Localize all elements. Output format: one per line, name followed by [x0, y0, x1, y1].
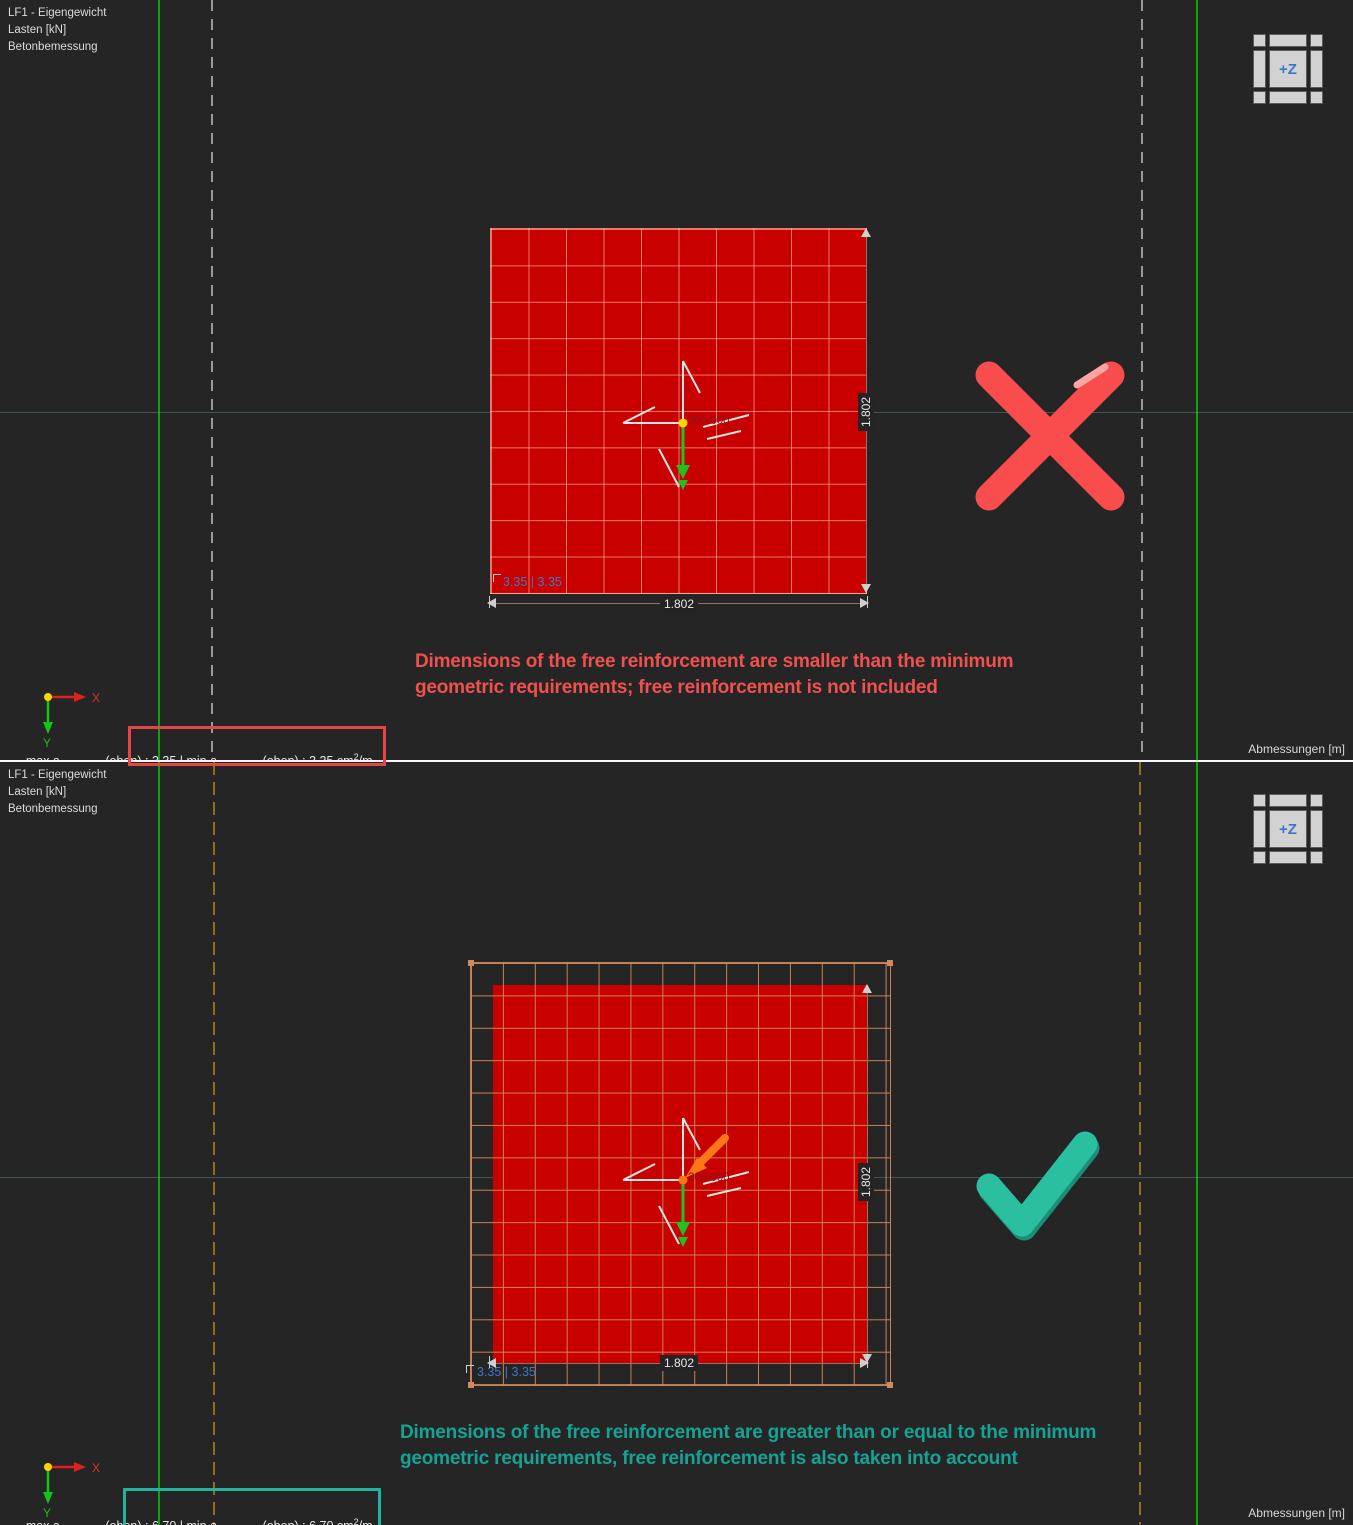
dimension-height-value: 1.802 — [858, 393, 874, 431]
view-cube-cell[interactable] — [1269, 34, 1307, 47]
view-cube-z-face[interactable]: +Z — [1269, 50, 1307, 88]
grid-line-green — [1196, 0, 1198, 760]
selection-arrow-icon — [700, 1138, 725, 1163]
dim-tick — [489, 1356, 490, 1368]
view-cube-cell[interactable] — [1253, 794, 1266, 807]
dimensions-unit-label: Abmessungen [m] — [1248, 1506, 1345, 1520]
view-cube-cell[interactable] — [1269, 794, 1307, 807]
view-cube-cell[interactable] — [1253, 34, 1266, 47]
dim-arrow-up-icon — [862, 984, 872, 993]
design-label: Betonbemessung — [8, 801, 106, 818]
annotation-accepted: Dimensions of the free reinforcement are… — [400, 1420, 1096, 1472]
view-info-block: LF1 - Eigengewicht Lasten [kN] Betonbeme… — [8, 767, 106, 818]
grid-line-dashed-yellow — [1139, 762, 1141, 1525]
highlight-box-teal — [123, 1488, 381, 1525]
loads-label: Lasten [kN] — [8, 22, 106, 39]
view-cube-z-face[interactable]: +Z — [1269, 810, 1307, 848]
grid-line-dashed-yellow — [213, 762, 215, 1525]
status-max-label: max a — [26, 1519, 60, 1525]
view-cube[interactable]: +Z — [1253, 34, 1323, 104]
mesh-corner-node[interactable] — [887, 1382, 893, 1388]
result-corner-label: 3.35 | 3.35 — [477, 1365, 536, 1379]
load-symbol-icon — [603, 353, 763, 493]
grid-line-dashed — [1141, 0, 1143, 760]
loadcase-label: LF1 - Eigengewicht — [8, 767, 106, 784]
mesh-corner-node[interactable] — [468, 1382, 474, 1388]
grid-line-dashed — [211, 0, 213, 760]
annotation-line: geometric requirements, free reinforceme… — [400, 1446, 1096, 1472]
grid-line-green — [1196, 762, 1198, 1525]
load-value-label: 300.000 — [688, 1172, 730, 1184]
grid-line-green — [158, 0, 160, 760]
view-cube-cell[interactable] — [1269, 851, 1307, 864]
view-cube-cell[interactable] — [1310, 851, 1323, 864]
mesh-corner-node[interactable] — [887, 960, 893, 966]
view-cube-cell[interactable] — [1253, 810, 1266, 848]
axis-x-label: X — [92, 1461, 100, 1475]
loads-label: Lasten [kN] — [8, 784, 106, 801]
result-corner-label: 3.35 | 3.35 — [503, 575, 562, 589]
load-symbol-icon — [603, 1110, 763, 1250]
view-cube-cell[interactable] — [1310, 34, 1323, 47]
view-cube[interactable]: +Z — [1253, 794, 1323, 864]
dim-arrow-down-icon — [862, 1354, 872, 1363]
design-label: Betonbemessung — [8, 39, 106, 56]
viewport-rejected[interactable]: LF1 - Eigengewicht Lasten [kN] Betonbeme… — [0, 0, 1353, 760]
dimensions-unit-label: Abmessungen [m] — [1248, 742, 1345, 756]
view-cube-cell[interactable] — [1310, 794, 1323, 807]
dim-arrow-down-icon — [861, 584, 871, 593]
corner-mark — [493, 574, 501, 582]
dim-tick — [489, 596, 490, 608]
dimension-width-value: 1.802 — [660, 1355, 698, 1371]
dim-tick — [867, 596, 868, 608]
dimension-height-value: 1.802 — [858, 1163, 874, 1201]
view-cube-cell[interactable] — [1310, 50, 1323, 88]
viewport-accepted[interactable]: LF1 - Eigengewicht Lasten [kN] Betonbeme… — [0, 762, 1353, 1525]
mesh-corner-node[interactable] — [468, 960, 474, 966]
view-cube-cell[interactable] — [1310, 810, 1323, 848]
dim-arrow-up-icon — [861, 228, 871, 237]
loadcase-label: LF1 - Eigengewicht — [8, 5, 106, 22]
view-cube-cell[interactable] — [1253, 91, 1266, 104]
x-mark-icon — [965, 345, 1135, 517]
load-value-label: 300.000 — [688, 415, 730, 427]
annotation-line: geometric requirements; free reinforceme… — [415, 675, 1013, 701]
view-cube-cell[interactable] — [1253, 50, 1266, 88]
annotation-line: Dimensions of the free reinforcement are… — [400, 1420, 1096, 1446]
axis-x-label: X — [92, 691, 100, 705]
view-cube-cell[interactable] — [1253, 851, 1266, 864]
view-cube-cell[interactable] — [1310, 91, 1323, 104]
annotation-rejected: Dimensions of the free reinforcement are… — [415, 649, 1013, 701]
app-window: LF1 - Eigengewicht Lasten [kN] Betonbeme… — [0, 0, 1353, 1525]
grid-line-green — [158, 762, 160, 1525]
checkmark-icon — [975, 1122, 1100, 1242]
annotation-line: Dimensions of the free reinforcement are… — [415, 649, 1013, 675]
corner-mark — [466, 1365, 474, 1373]
highlight-box-red — [128, 726, 386, 766]
dimension-width-value: 1.802 — [660, 596, 698, 612]
view-cube-cell[interactable] — [1269, 91, 1307, 104]
view-info-block: LF1 - Eigengewicht Lasten [kN] Betonbeme… — [8, 5, 106, 56]
